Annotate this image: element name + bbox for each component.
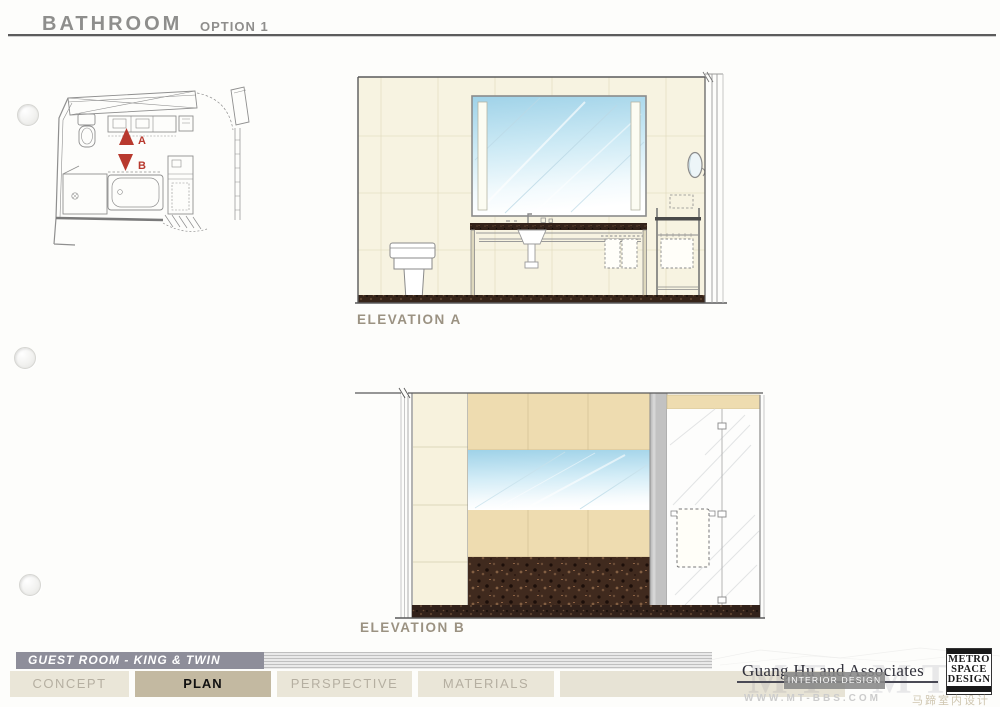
mirror-light-strip-right (631, 102, 640, 210)
elevation-b-label: ELEVATION B (360, 620, 465, 635)
plan-closet (63, 166, 107, 214)
elevation-b-drawing (355, 385, 767, 635)
vanity-towels (601, 236, 643, 268)
plan-marker-b: B (118, 154, 146, 172)
tab-perspective[interactable]: PERSPECTIVE (277, 671, 412, 697)
watermark-url: WWW.MT-BBS.COM (744, 693, 881, 704)
tab-materials[interactable]: MATERIALS (418, 671, 554, 697)
vanity-mirror (472, 96, 646, 216)
watermark-chinese: 马蹄室内设计网 (912, 692, 1000, 707)
cream-tile-column (413, 393, 468, 605)
presentation-page: BATHROOM OPTION 1 (0, 0, 1000, 707)
svg-text:B: B (138, 160, 146, 172)
plan-door (197, 87, 249, 130)
shower-towel (671, 509, 715, 567)
mirror-strip (468, 450, 650, 510)
punch-hole-top (17, 104, 39, 126)
mosaic-tile-band (468, 557, 650, 605)
plan-marker-a: A (119, 128, 146, 147)
page-title: BATHROOM (42, 13, 182, 36)
divider-column (650, 393, 667, 605)
page-option-label: OPTION 1 (200, 19, 269, 34)
footer-stripes (264, 652, 712, 669)
metro-space-design-logo: METRO SPACE DESIGN (946, 648, 992, 695)
shower-enclosure (667, 395, 764, 618)
header-rule (8, 34, 996, 37)
logo-line-3: DESIGN (947, 675, 991, 685)
wall-edge-lines-a (703, 72, 723, 303)
mirror-light-strip-left (478, 102, 487, 210)
plan-toilet (78, 114, 95, 147)
plan-bathtub (108, 172, 163, 210)
plan-vanity (108, 116, 193, 136)
punch-hole-middle (14, 347, 36, 369)
plan-walls (54, 87, 249, 245)
wall-edge-lines-b (401, 393, 412, 618)
plan-right-wall (235, 128, 240, 220)
baseboard-a (358, 295, 705, 303)
elevation-a-label: ELEVATION A (357, 312, 462, 327)
elevation-a-drawing (355, 70, 727, 312)
tan-tile-lower (468, 510, 650, 557)
interior-design-badge: INTERIOR DESIGN (784, 672, 885, 689)
tan-tile-upper (468, 393, 650, 450)
tab-concept[interactable]: CONCEPT (10, 671, 129, 697)
svg-text:A: A (138, 135, 146, 147)
vanity-counter (470, 223, 647, 230)
floor-plan-key: A B (45, 78, 270, 253)
punch-hole-bottom (19, 574, 41, 596)
baseboard-b (412, 605, 760, 618)
section-title-bar: GUEST ROOM - KING & TWIN (16, 652, 264, 669)
tab-plan[interactable]: PLAN (135, 671, 271, 697)
plan-shower (168, 156, 193, 214)
